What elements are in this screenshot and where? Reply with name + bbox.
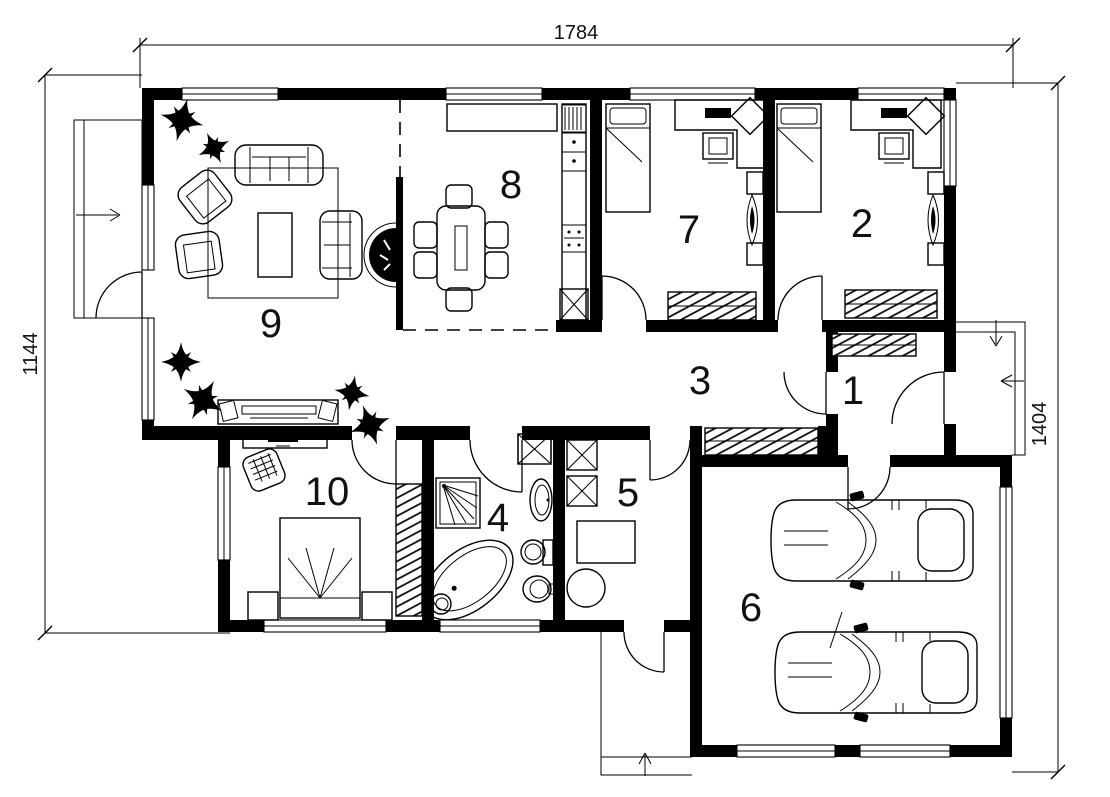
hall-wardrobe [705, 428, 818, 455]
window [264, 620, 386, 632]
terrace-entry-arrow [76, 209, 120, 221]
window [737, 745, 835, 757]
car [775, 622, 977, 722]
door-front [892, 372, 944, 424]
window [944, 100, 956, 186]
door-terrace [96, 272, 142, 318]
door-bathroom [470, 440, 522, 492]
bed [777, 104, 821, 212]
dryer [567, 476, 597, 506]
shower [436, 478, 480, 528]
sofa-three-seat [235, 145, 323, 185]
sofa-two-seat [320, 211, 362, 279]
dimension-left: 1144 [20, 68, 230, 640]
room-label-2: 2 [851, 202, 873, 246]
wardrobe [845, 290, 937, 318]
living-room-furniture [155, 93, 398, 453]
kitchen-furniture [414, 104, 588, 320]
dining-chair [446, 288, 472, 311]
terrace [74, 120, 142, 318]
kitchen-counter-strip [560, 104, 588, 320]
window [182, 88, 278, 100]
media-bench [218, 400, 338, 424]
sink [530, 479, 552, 521]
table [577, 521, 635, 563]
double-bed [248, 518, 392, 620]
computer-monitor [703, 133, 733, 159]
dining-table [414, 185, 508, 311]
computer-monitor [879, 133, 909, 159]
room-label-6: 6 [740, 586, 762, 630]
door-utility [650, 440, 690, 480]
window [446, 88, 542, 100]
closet [396, 484, 422, 616]
tv-unit [364, 223, 396, 287]
radiator [747, 195, 758, 245]
car-antenna [830, 612, 842, 648]
dimension-right-label: 1404 [1029, 402, 1051, 447]
window [1000, 487, 1012, 718]
desk [851, 100, 941, 168]
armchair [174, 166, 236, 228]
walls [142, 88, 1012, 757]
desk [675, 100, 765, 168]
sink [562, 105, 586, 132]
shelf [747, 243, 763, 265]
windows [142, 88, 1012, 757]
garage-contents [771, 490, 977, 722]
dining-chair [414, 252, 437, 278]
desk-chair [908, 98, 945, 135]
back-patio [601, 632, 692, 776]
plant [161, 342, 202, 383]
bedroom10-furniture [241, 432, 422, 620]
window [860, 745, 950, 757]
floor-plan: 1784 1144 1404 [0, 0, 1110, 797]
radiator [928, 195, 939, 245]
desk-chair [732, 98, 769, 135]
open-plan-boundaries [400, 100, 556, 330]
door-room7 [602, 276, 646, 320]
bidet [523, 576, 554, 602]
entrance-porch [956, 320, 1025, 455]
room-label-8: 8 [500, 163, 522, 207]
nightstand [362, 592, 392, 620]
boiler [567, 569, 605, 607]
room-label-4: 4 [487, 496, 509, 540]
shelf [928, 172, 944, 194]
plant [155, 93, 209, 147]
window [858, 88, 944, 100]
door-room10 [352, 440, 396, 484]
shelf [747, 172, 763, 194]
dining-chair [414, 222, 437, 248]
plant [191, 125, 236, 170]
speaker [318, 400, 337, 421]
door-garage [848, 467, 890, 509]
dining-chair [485, 222, 508, 248]
window [142, 318, 154, 420]
coffee-table [258, 213, 292, 277]
room-label-10: 10 [305, 470, 350, 514]
room-label-5: 5 [617, 471, 639, 515]
dimension-left-label: 1144 [20, 332, 42, 375]
window [440, 620, 540, 632]
car [771, 490, 973, 590]
window [218, 467, 230, 560]
armchair [174, 230, 224, 280]
bed [606, 104, 650, 212]
rug [208, 168, 338, 298]
floor-plan-drawing: 1784 1144 1404 [0, 0, 1110, 797]
toilet [521, 540, 553, 565]
washing-machine [567, 440, 597, 470]
porch-entry-arrow-left [1001, 375, 1024, 387]
window [630, 88, 755, 100]
patio-entry-arrow-up [639, 753, 651, 776]
plant [331, 372, 373, 414]
door-hall-room1 [784, 372, 826, 414]
nightstand [248, 592, 278, 620]
door-back-patio [624, 632, 664, 672]
chair [241, 447, 288, 494]
dimension-top-label: 1784 [554, 22, 599, 44]
room-label-1: 1 [842, 369, 864, 413]
room-label-7: 7 [678, 208, 700, 252]
kitchen-top-counter [447, 104, 557, 131]
room-label-9: 9 [260, 302, 282, 346]
porch-entry-arrow-down [990, 320, 1002, 346]
entrance-wardrobe [832, 334, 916, 356]
dimension-top: 1784 [133, 22, 1020, 88]
dining-chair [446, 185, 472, 208]
stove [562, 225, 586, 252]
wardrobe [668, 292, 756, 320]
window [142, 185, 154, 270]
utility-room-fixtures [567, 440, 635, 607]
dining-chair [485, 252, 508, 278]
shelf [928, 243, 944, 265]
door-room2 [778, 276, 822, 320]
room-label-3: 3 [689, 359, 711, 403]
fridge [560, 289, 588, 320]
